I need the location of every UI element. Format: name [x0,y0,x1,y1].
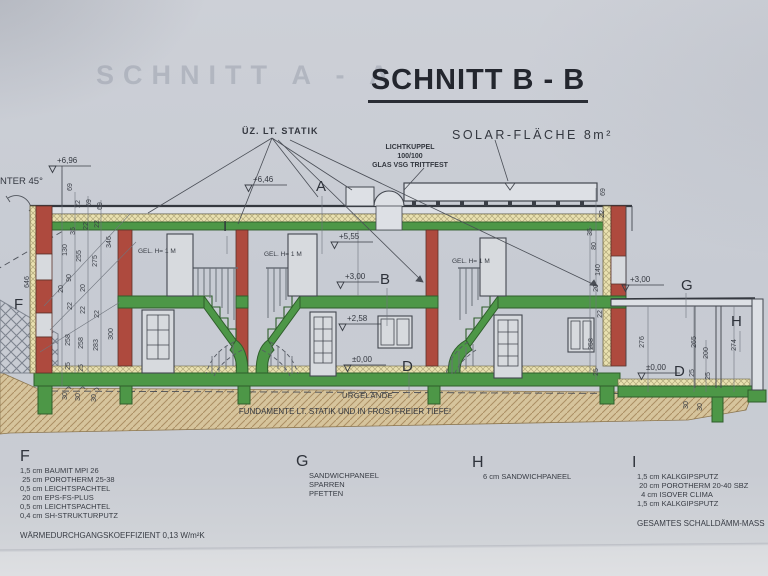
legend-item: 4 cm ISOVER CLIMA [637,490,768,499]
legend-item: SANDWICHPANEEL [309,471,379,480]
lichtkuppel-label-1: LICHTKUPPEL [386,144,436,151]
dimension-label: 25 [65,362,72,370]
section-mark-h: H [731,313,742,330]
elevation-label: +2,58 [347,314,368,323]
schalldaemm-note: GESAMTES SCHALLDÄMM-MASS 5 [637,519,768,528]
section-mark-g: G [681,277,693,294]
dimension-label: 283 [93,339,100,351]
legend-item: 0,5 cm LEICHTSPACHTEL [20,502,205,511]
dimension-label: 90 [66,274,73,282]
legend-f-letter: F [20,448,205,466]
dimension-label: 69 [67,183,74,191]
legend-f: F 1,5 cm BAUMIT MPI 26 25 cm POROTHERM 2… [20,448,205,540]
elevation-triangle-icon [339,324,346,331]
paper-edge [0,543,768,576]
elevation-label: +3,00 [345,272,366,281]
dimension-label: 30 [62,392,69,400]
dimension-label: 20 [58,285,65,293]
dimension-label: 22 [75,200,82,208]
elevation-label: +3,00 [630,275,651,284]
dimension-label: 22 [94,310,101,318]
section-mark-i: I [223,218,227,235]
solar-flaeche-label: SOLAR-FLÄCHE 8m² [452,128,613,142]
dimension-label: 69 [600,188,607,196]
dimension-label: 30 [683,401,690,409]
dimension-label: 275 [92,255,99,267]
gel-height-label: GEL. H= 1 M [452,258,490,265]
dimension-label: 30 [91,394,98,402]
dimension-label: 22 [597,310,604,318]
dimension-label: 140 [595,264,602,276]
legend-i: I 1,5 cm KALKGIPSPUTZ 20 cm POROTHERM 20… [632,454,768,528]
dimension-label: 22 [94,220,101,228]
dimension-label: 69 [86,199,93,207]
dimension-label: 274 [731,339,738,351]
legend-g-letter: G [296,453,379,471]
lichtkuppel-label-3: GLAS VSG TRITTFEST [372,162,449,169]
u-value-note: WÄRMEDURCHGANGSKOEFFIZIENT 0,13 W/m²K [20,531,205,540]
elevation-label: +6,46 [253,175,274,184]
dimension-label: 200 [703,347,710,359]
elevation-label: +6,96 [57,156,78,165]
uez-statik-label: ÜZ. LT. STATIK [242,126,319,136]
dimension-label: 22 [80,306,87,314]
dimension-label: 30 [75,393,82,401]
dimension-label: 276 [639,336,646,348]
dimension-label: 25 [593,368,600,376]
section-mark-d: D [674,363,685,380]
elevation-triangle-icon [49,166,56,173]
legend-item: 1,5 cm KALKGIPSPUTZ [637,499,768,508]
dimension-label: 30 [697,403,704,411]
elevation-triangle-icon [331,242,338,249]
dimension-label: 300 [108,328,115,340]
legend-item: PFETTEN [309,489,379,498]
elevation-label: ±0,00 [352,355,373,364]
urgelaende-label: URGELÄNDE [342,391,393,400]
legend-item: 1,5 cm KALKGIPSPUTZ [637,472,768,481]
dimension-label: 25 [705,372,712,380]
fundamente-label: FUNDAMENTE LT. STATIK UND IN FROSTFREIER… [239,407,451,416]
dimension-label: 20 [80,284,87,292]
legend-h-letter: H [472,454,571,472]
elevation-triangle-icon [337,282,344,289]
lichtkuppel-dome [374,191,404,206]
dimension-label: 258 [78,337,85,349]
dimension-label: 25 [689,369,696,377]
dimension-label: 80 [591,242,598,250]
legend-item: 20 cm POROTHERM 20-40 SBZ [637,481,768,490]
dimension-label: 35 [70,227,77,235]
upper-floor-slabs [118,296,626,308]
dimension-label: 25 [78,364,85,372]
dimension-label: 35 [587,228,594,236]
dimension-label: 22 [83,222,90,230]
legend-i-letter: I [632,454,768,472]
legend-h: H 6 cm SANDWICHPANEEL [472,454,571,481]
legend-item: 0,5 cm LEICHTSPACHTEL [20,484,205,493]
dimension-label: 22 [67,302,74,310]
legend-item: 0,4 cm SH-STRUKTURPUTZ [20,511,205,520]
dimension-label: 258 [65,334,72,346]
legend-item: 1,5 cm BAUMIT MPI 26 [20,466,205,475]
dimension-label: 130 [62,244,69,256]
dimension-label: 265 [691,336,698,348]
elevation-label: ±0,00 [646,363,667,372]
legend-item: 6 cm SANDWICHPANEEL [483,472,571,481]
railings [172,268,502,320]
dimension-label: 255 [76,250,83,262]
dimension-label: 258 [588,338,595,350]
legend-item: 20 cm EPS-FS-PLUS [20,493,205,502]
legend-g: G SANDWICHPANEELSPARRENPFETTEN [296,453,379,498]
dimension-label: 22 [599,210,606,218]
legend-item: SPARREN [309,480,379,489]
doors-upper [167,234,506,296]
section-mark-d: D [402,358,413,375]
elevation-label: +5,55 [339,232,360,241]
dimension-label: 20 [593,284,600,292]
elevation-triangle-icon [638,373,645,380]
unter-45-label: NTER 45° [0,176,43,187]
section-mark-f: F [14,296,23,313]
dimension-label: 69 [97,202,104,210]
scanned-plan-photo: SCHNITT A - A SCHNITT B - B [0,0,768,576]
roof-assembly [30,183,632,230]
section-mark-a: A [316,178,326,195]
lichtkuppel-label-2: 100/100 [397,153,422,160]
legend-item: 25 cm POROTHERM 25-38 [20,475,205,484]
gel-height-label: GEL. H= 1 M [138,248,176,255]
dimension-label: 646 [24,276,31,288]
gel-height-label: GEL. H= 1 M [264,251,302,258]
section-mark-b: B [380,271,390,288]
dimension-label: 346 [106,236,113,248]
